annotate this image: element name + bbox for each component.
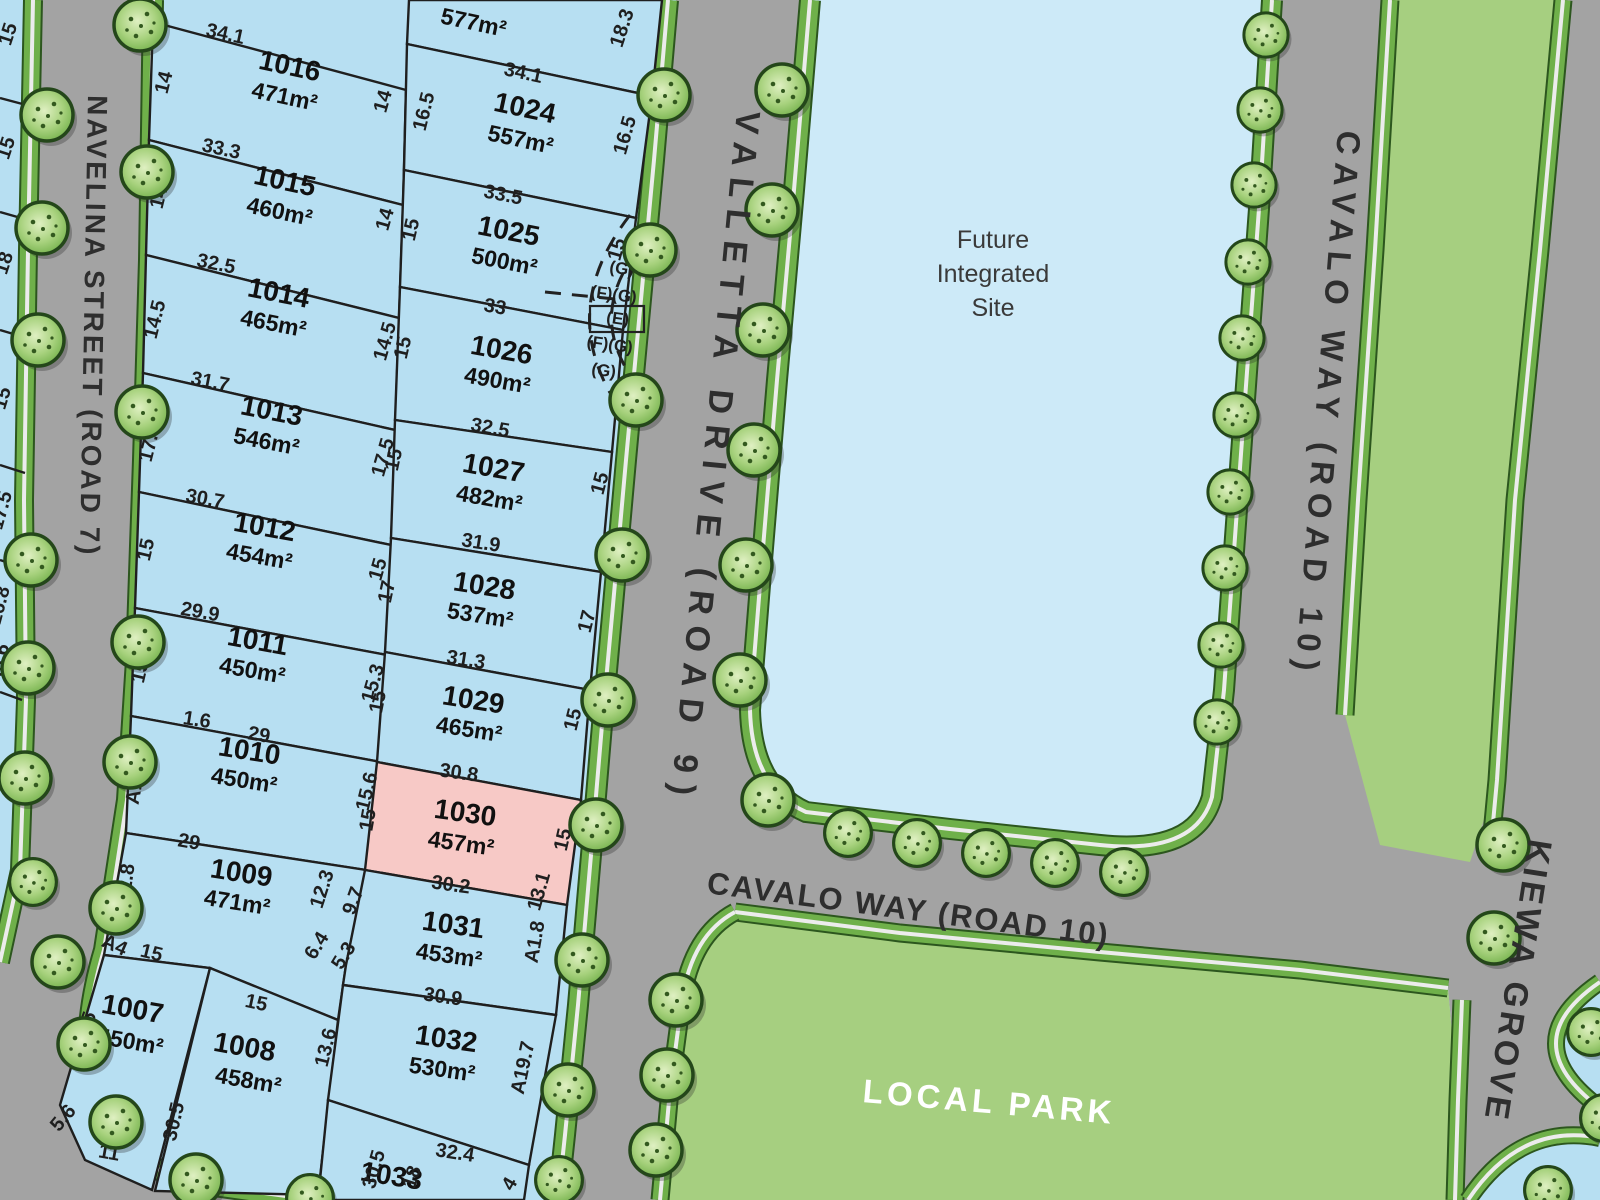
dimension-label: 29 [246, 722, 272, 748]
estate-map-canvas: 577m²1016471m²1015460m²1014465m²1013546m… [0, 0, 1600, 1200]
future-site-label-line1: Future [957, 226, 1029, 254]
dimension-label: 1.6 [181, 707, 212, 733]
easement-label: (G) [590, 359, 617, 381]
dimension-label: 15 [355, 807, 381, 833]
future-site-label-line3: Site [971, 294, 1014, 322]
dimension-label: 33 [482, 294, 508, 320]
future-site-label-line2: Integrated [937, 260, 1050, 288]
dimension-label: 17 [374, 579, 400, 605]
subdivision-plan: 577m²1016471m²1015460m²1014465m²1013546m… [0, 0, 1600, 1200]
dimension-label: 29 [176, 829, 202, 855]
dimension-label: 15 [243, 990, 269, 1016]
easement-label: (E) [605, 308, 630, 330]
dimension-label: 15 [365, 689, 391, 715]
dimension-label: 15 [381, 447, 407, 473]
